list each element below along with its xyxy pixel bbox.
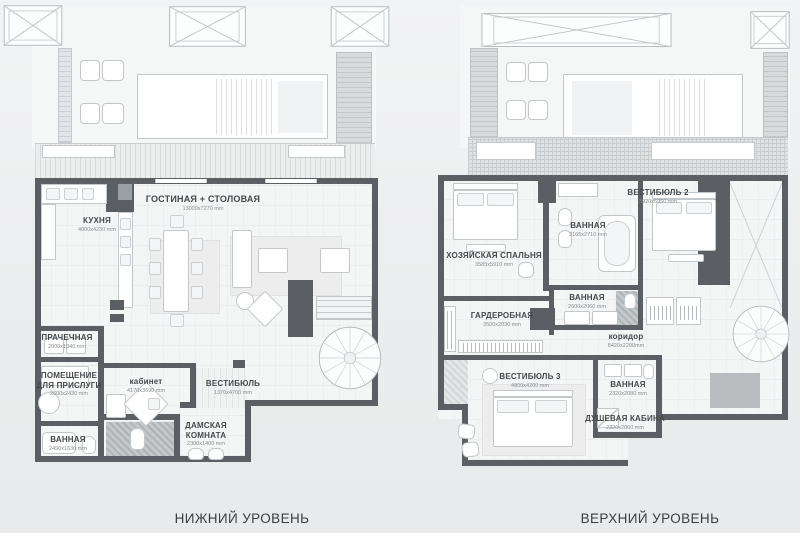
deck-inset xyxy=(476,142,536,160)
dining-chair xyxy=(170,314,184,327)
terrace-deck xyxy=(563,74,743,140)
deck-panel xyxy=(278,81,323,133)
sink-cabinet xyxy=(592,311,618,325)
toilet xyxy=(130,428,145,450)
kitchen-island xyxy=(110,300,124,310)
kitchen-counter xyxy=(41,204,56,260)
pillow xyxy=(686,202,712,214)
terrace-planter xyxy=(470,48,498,138)
upper-level-caption: ВЕРХНИЙ УРОВЕНЬ xyxy=(470,511,800,526)
dining-chair xyxy=(170,215,184,228)
dining-table xyxy=(163,230,189,312)
pillow xyxy=(457,193,484,206)
wall xyxy=(104,363,196,368)
lower-level-caption: НИЖНИЙ УРОВЕНЬ xyxy=(62,511,422,526)
bathtub-basin xyxy=(604,221,630,266)
vanity-counter xyxy=(558,183,598,197)
pillow xyxy=(497,400,529,413)
room-label-master-bedroom: ХОЗЯЙСКАЯ СПАЛЬНЯ 3585x5910 mm xyxy=(446,251,542,268)
wall xyxy=(438,296,549,301)
kitchen-appliance xyxy=(82,188,94,200)
room-label-living-dining: ГОСТИНАЯ + СТОЛОВАЯ 13000x7270 mm xyxy=(146,194,260,212)
wall xyxy=(782,175,788,420)
lower-level-plan: КУХНЯ 4000x4230 mm ГОСТИНАЯ + СТОЛОВАЯ 1… xyxy=(30,8,390,468)
room-label-vestibule-3: ВЕСТИБЮЛЬ 3 4800x4200 mm xyxy=(499,372,560,389)
deck-inset xyxy=(288,145,345,158)
window xyxy=(155,179,207,183)
pergola-skylight-icon xyxy=(168,5,247,48)
hanger-ticks xyxy=(463,343,540,352)
sofa xyxy=(258,248,288,273)
office-desk xyxy=(106,394,126,418)
room-label-bathroom-1: ВАННАЯ 3165x2710 mm xyxy=(569,221,607,238)
wall xyxy=(246,400,378,406)
sink-cabinet xyxy=(564,311,590,325)
stairs xyxy=(316,296,372,320)
fireplace-block xyxy=(288,280,313,337)
void-cross-lines xyxy=(730,183,782,308)
closet xyxy=(646,297,674,325)
sink-cabinet xyxy=(604,364,622,377)
wall xyxy=(555,325,643,330)
closet xyxy=(676,297,701,325)
pillow xyxy=(487,193,514,206)
lounge-chair xyxy=(102,103,124,124)
terrace-planter xyxy=(58,48,72,143)
spiral-staircase xyxy=(732,305,790,363)
room-label-kitchen: КУХНЯ 4000x4230 mm xyxy=(78,216,116,233)
wall xyxy=(549,285,643,290)
office-chair xyxy=(148,398,160,410)
pillow xyxy=(535,400,567,413)
upper-level-plan: ВЕСТИБЮЛЬ 2 3920x5950 mm ВАННАЯ 3165x271… xyxy=(430,8,790,468)
dining-chair xyxy=(191,262,203,275)
room-label-vestibule-2: ВЕСТИБЮЛЬ 2 3920x5950 mm xyxy=(627,188,688,205)
floor-plan-page: { "captions": { "lower": "НИЖНИЙ УРОВЕНЬ… xyxy=(0,0,800,533)
wardrobe-rack xyxy=(444,306,456,352)
dining-chair xyxy=(149,286,161,299)
room-label-office: кабинет 4170x3690 mm xyxy=(127,377,165,394)
dining-chair xyxy=(149,262,161,275)
lounge-chair xyxy=(528,100,548,120)
pergola-skylight-icon xyxy=(750,10,790,50)
deck-lines xyxy=(659,79,709,136)
wall xyxy=(638,285,643,330)
column-block xyxy=(118,184,132,200)
elevator-block xyxy=(710,373,760,408)
lounge-chair xyxy=(506,100,526,120)
room-label-laundry: ПРАЧЕЧНАЯ 2000x1340 mm xyxy=(41,333,92,350)
deck-panel xyxy=(572,81,632,135)
bed-bench xyxy=(668,254,704,262)
room-label-wardrobe: ГАРДЕРОБНАЯ 3500x2030 mm xyxy=(471,311,533,328)
wall xyxy=(593,432,662,438)
wall xyxy=(462,460,628,466)
room-label-bathroom-2: ВАННАЯ 2600x2060 mm xyxy=(568,293,606,310)
balcony-strip xyxy=(444,360,468,404)
room-label-vestibule: ВЕСТИБЮЛЬ 1370x4700 mm xyxy=(206,379,260,396)
toilet xyxy=(643,364,654,379)
column-block xyxy=(538,181,556,203)
sofa xyxy=(232,230,252,288)
bed-headboard xyxy=(493,390,573,397)
spiral-staircase xyxy=(318,326,382,390)
terrace-deck xyxy=(137,74,328,139)
window xyxy=(265,179,317,183)
kitchen-appliance xyxy=(120,254,131,266)
dining-chair xyxy=(149,238,161,251)
wall xyxy=(35,326,104,331)
kitchen-sink xyxy=(46,188,60,200)
wall xyxy=(438,355,662,360)
room-label-corridor: коридор 8420x2200mm xyxy=(608,332,644,349)
room-label-bathroom-3: ВАННАЯ 2320x2080 mm xyxy=(609,380,647,397)
room-label-maid-room: ПОМЕЩЕНИЕ ДЛЯ ПРИСЛУГИ 2600x2430 mm xyxy=(37,371,102,398)
terrace-planter xyxy=(763,52,788,138)
dining-chair xyxy=(191,286,203,299)
armchair xyxy=(457,423,476,440)
kitchen-appliance xyxy=(120,218,131,230)
kitchen-island xyxy=(110,314,124,322)
deck-inset xyxy=(651,142,755,160)
bed-headboard xyxy=(453,183,518,190)
hanger-ticks xyxy=(447,311,454,349)
sink-cabinet xyxy=(624,364,642,377)
room-label-ladies-room: ДАМСКАЯ КОМНАТА 2300x1400 mm xyxy=(185,421,227,448)
kitchen-appliance xyxy=(120,236,131,248)
wardrobe-rack xyxy=(458,340,543,353)
armchair xyxy=(461,441,480,458)
lounge-chair xyxy=(102,60,124,81)
bidet xyxy=(208,448,224,460)
hanger-ticks xyxy=(680,306,699,320)
room-label-bathroom: ВАННАЯ 2490x1630 mm xyxy=(49,435,87,452)
toilet xyxy=(624,293,636,309)
wall xyxy=(662,414,788,420)
sofa xyxy=(320,248,350,273)
terrace-planter xyxy=(336,52,372,144)
lounge-chair xyxy=(80,60,100,81)
lounge-chair xyxy=(528,62,548,82)
wall xyxy=(35,357,104,362)
wall xyxy=(438,175,788,181)
pergola-skylight-icon xyxy=(478,12,675,48)
room-label-shower-cabin: ДУШЕВАЯ КАБИНА 2320x2060 mm xyxy=(585,414,665,431)
deck-lines xyxy=(216,79,274,135)
dining-chair xyxy=(191,238,203,251)
wall xyxy=(35,421,104,426)
kitchen-cooktop xyxy=(64,188,78,200)
column-block xyxy=(530,308,555,330)
pergola-skylight-icon xyxy=(3,4,63,47)
toilet xyxy=(188,448,204,460)
pouf xyxy=(482,368,498,384)
lounge-chair xyxy=(80,103,100,124)
deck-inset xyxy=(42,145,115,158)
hanger-ticks xyxy=(650,306,672,320)
wall xyxy=(245,400,251,462)
lounge-chair xyxy=(506,62,526,82)
pergola-skylight-icon xyxy=(330,5,390,48)
